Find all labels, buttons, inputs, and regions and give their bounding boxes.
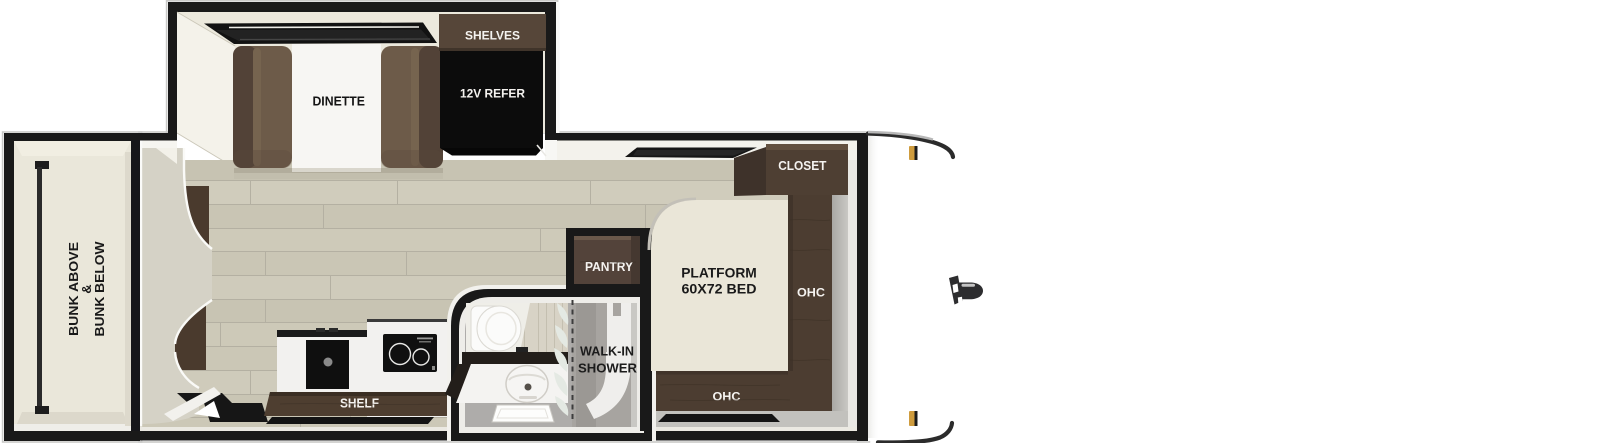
svg-text:OHC: OHC bbox=[797, 286, 825, 300]
svg-text:CLOSET: CLOSET bbox=[778, 158, 826, 173]
svg-text:60X72 BED: 60X72 BED bbox=[682, 281, 757, 297]
svg-text:OHC: OHC bbox=[713, 390, 741, 404]
svg-text:PLATFORM: PLATFORM bbox=[681, 265, 757, 281]
svg-text:SHOWER: SHOWER bbox=[578, 361, 638, 376]
svg-text:SHELVES: SHELVES bbox=[465, 29, 520, 43]
svg-text:SHELF: SHELF bbox=[340, 396, 379, 411]
svg-text:&: & bbox=[80, 284, 94, 293]
svg-text:WALK-IN: WALK-IN bbox=[580, 344, 634, 359]
svg-text:DINETTE: DINETTE bbox=[312, 94, 365, 108]
svg-text:12V REFER: 12V REFER bbox=[460, 87, 525, 101]
svg-text:BUNK ABOVE: BUNK ABOVE bbox=[67, 242, 81, 336]
svg-text:BUNK BELOW: BUNK BELOW bbox=[93, 241, 107, 336]
